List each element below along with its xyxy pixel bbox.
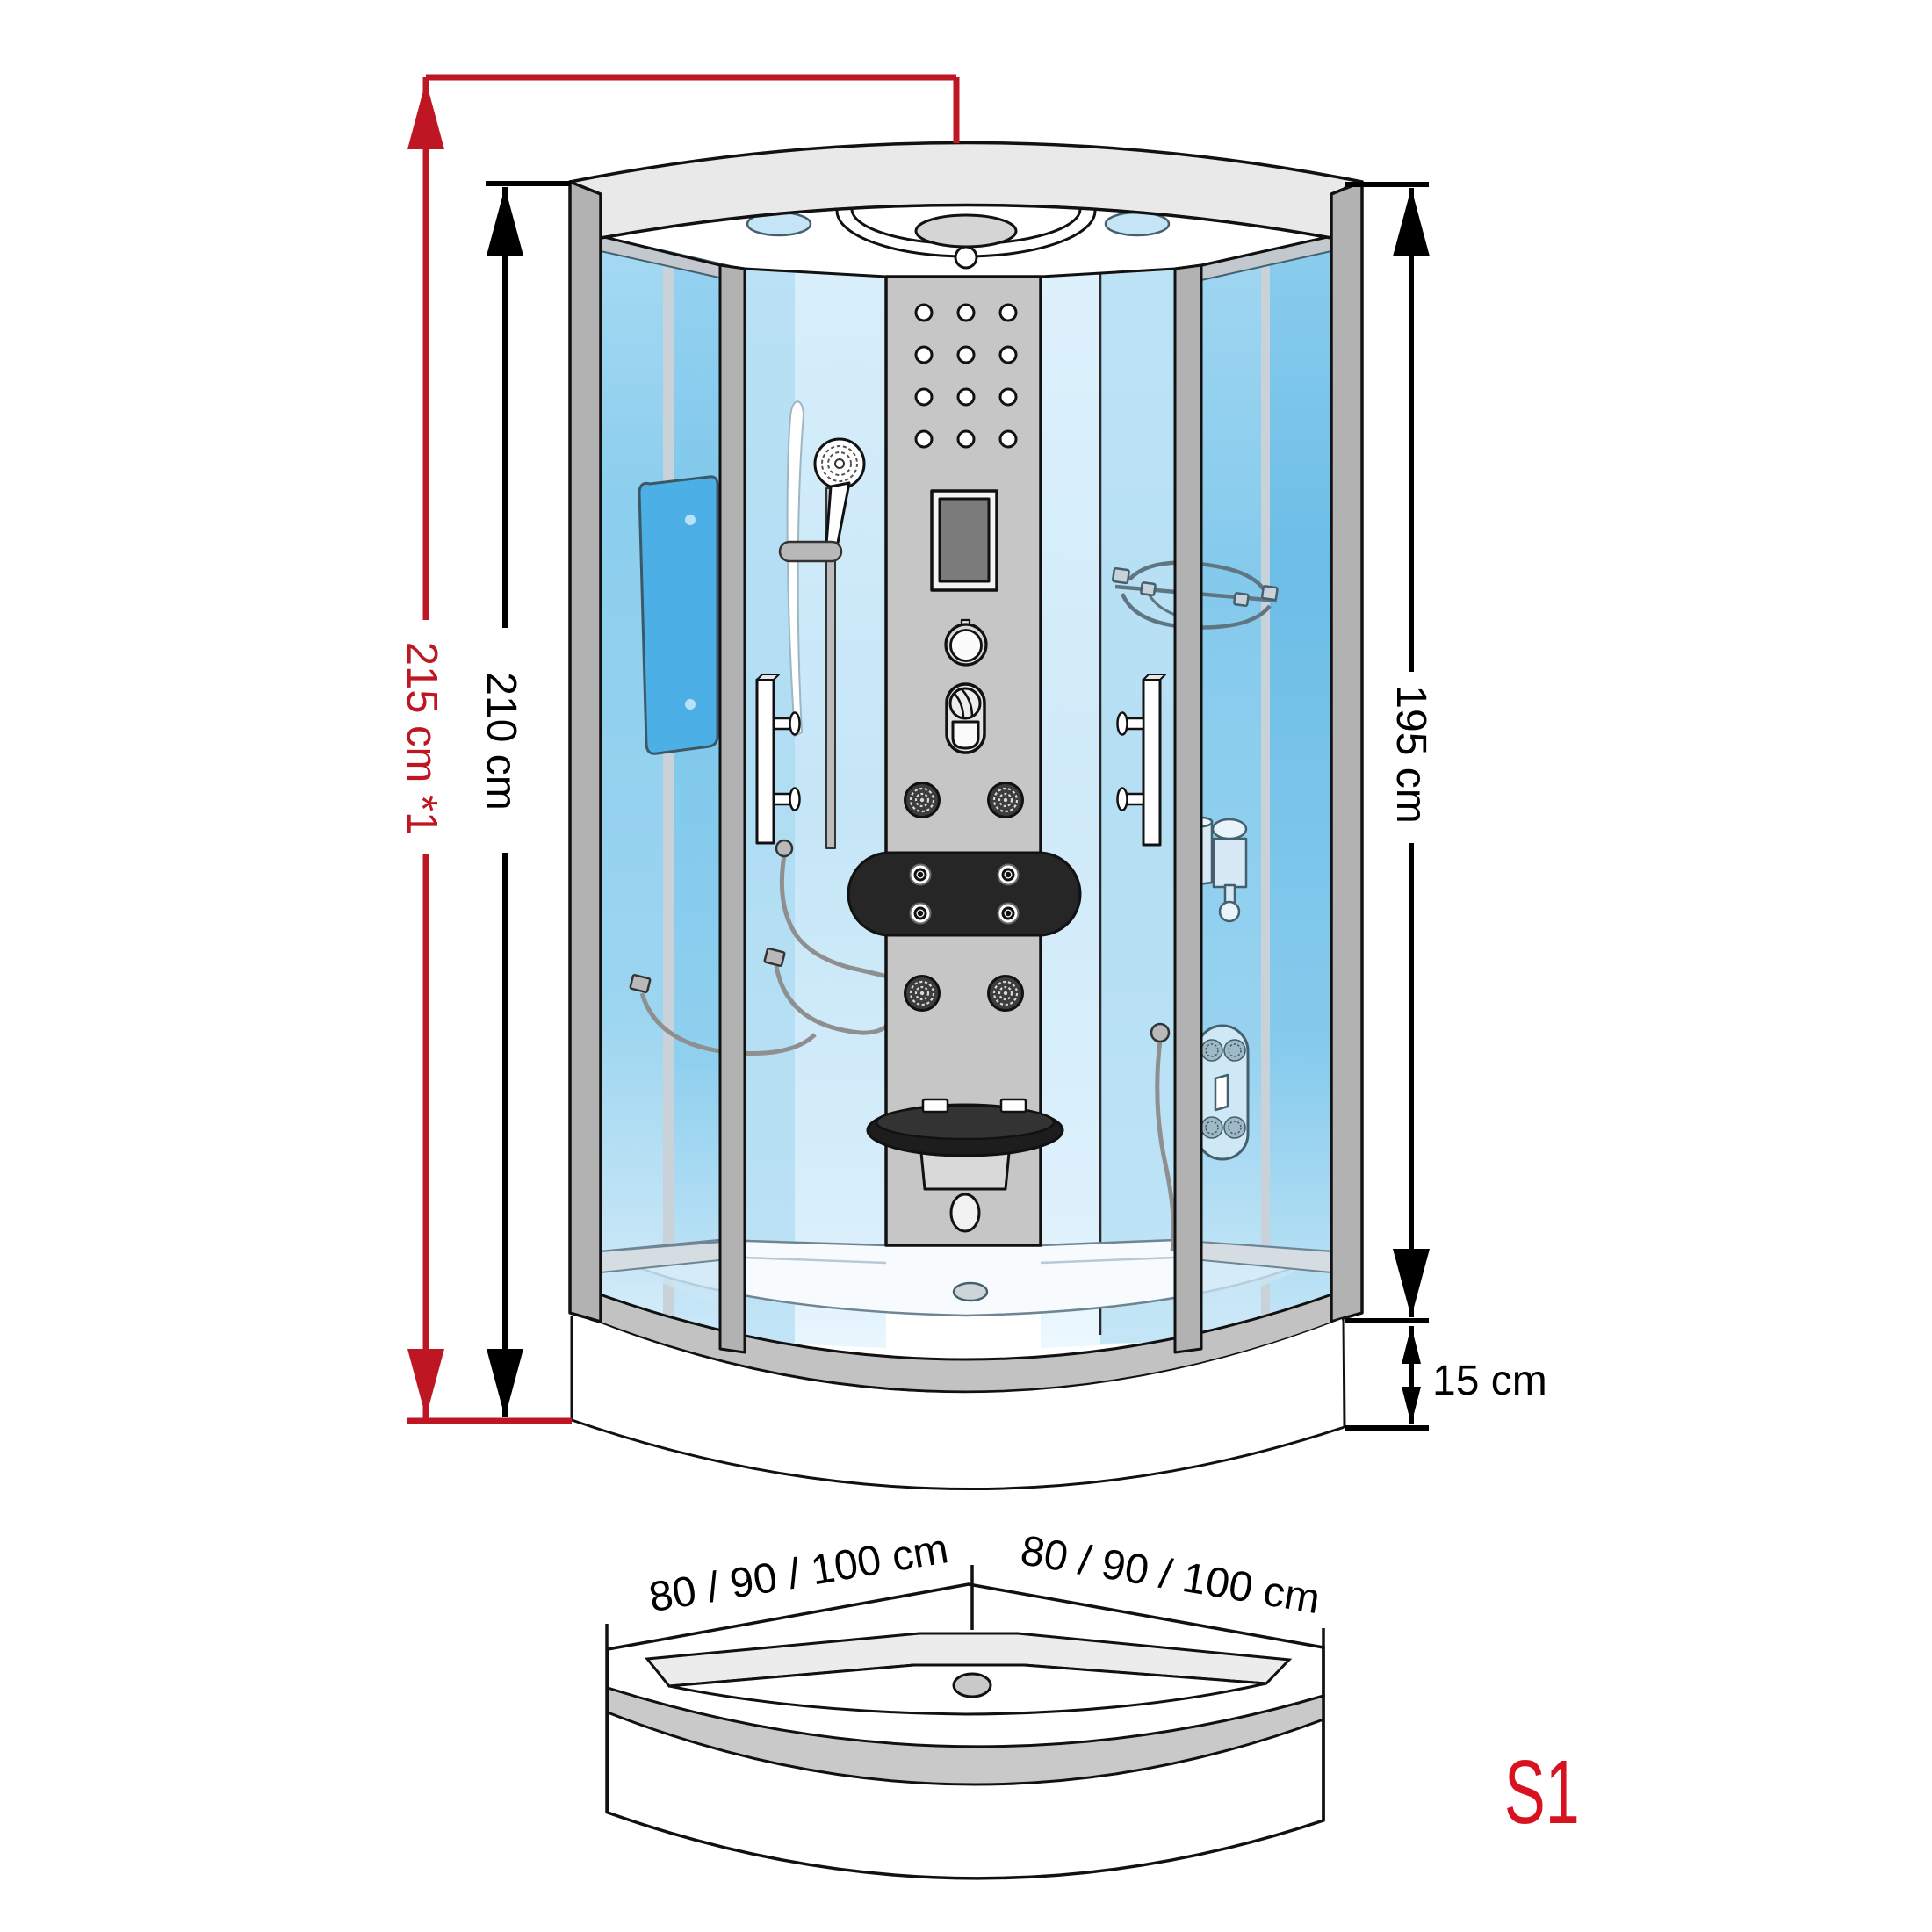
svg-text:210 cm: 210 cm (478, 672, 524, 810)
svg-text:15 cm: 15 cm (1432, 1358, 1547, 1404)
svg-text:215 cm *1: 215 cm *1 (398, 642, 445, 836)
svg-text:S1: S1 (1504, 1741, 1580, 1842)
svg-text:195 cm: 195 cm (1388, 685, 1434, 823)
